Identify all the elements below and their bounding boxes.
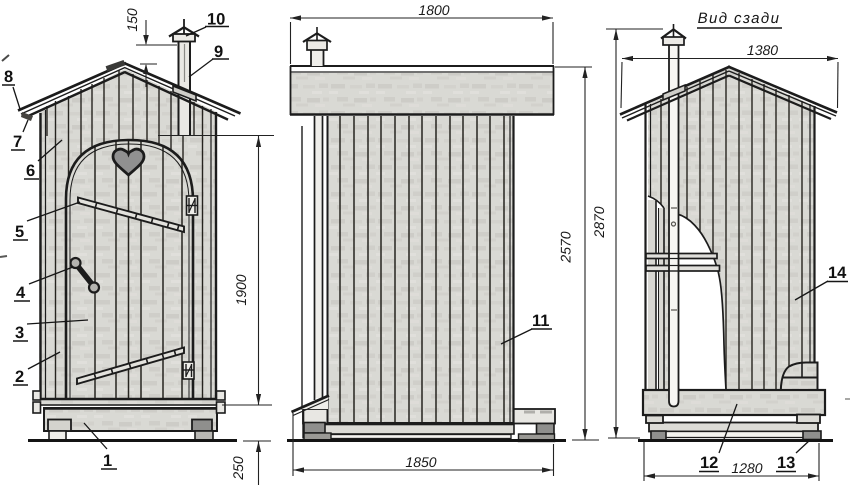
svg-text:Вид сзади: Вид сзади [698, 10, 781, 27]
svg-text:10: 10 [207, 11, 225, 29]
svg-text:9: 9 [214, 43, 223, 61]
svg-text:1: 1 [103, 452, 112, 470]
svg-text:1280: 1280 [731, 460, 762, 476]
svg-text:250: 250 [230, 456, 246, 481]
svg-text:3: 3 [15, 324, 24, 342]
svg-text:2870: 2870 [591, 206, 607, 238]
svg-text:8: 8 [4, 68, 13, 86]
svg-text:7: 7 [13, 133, 22, 151]
svg-text:150: 150 [124, 8, 140, 32]
svg-text:1900: 1900 [233, 274, 249, 305]
svg-text:14: 14 [828, 264, 847, 282]
svg-text:6: 6 [26, 162, 35, 180]
svg-text:2: 2 [15, 368, 24, 386]
svg-text:11: 11 [532, 312, 549, 330]
svg-text:2570: 2570 [558, 231, 574, 263]
svg-text:4: 4 [16, 284, 26, 302]
svg-text:5: 5 [15, 223, 24, 241]
svg-text:12: 12 [700, 454, 718, 472]
svg-text:13: 13 [777, 454, 795, 472]
svg-text:1850: 1850 [405, 454, 436, 470]
svg-text:1380: 1380 [747, 42, 778, 58]
svg-text:1800: 1800 [418, 2, 449, 18]
